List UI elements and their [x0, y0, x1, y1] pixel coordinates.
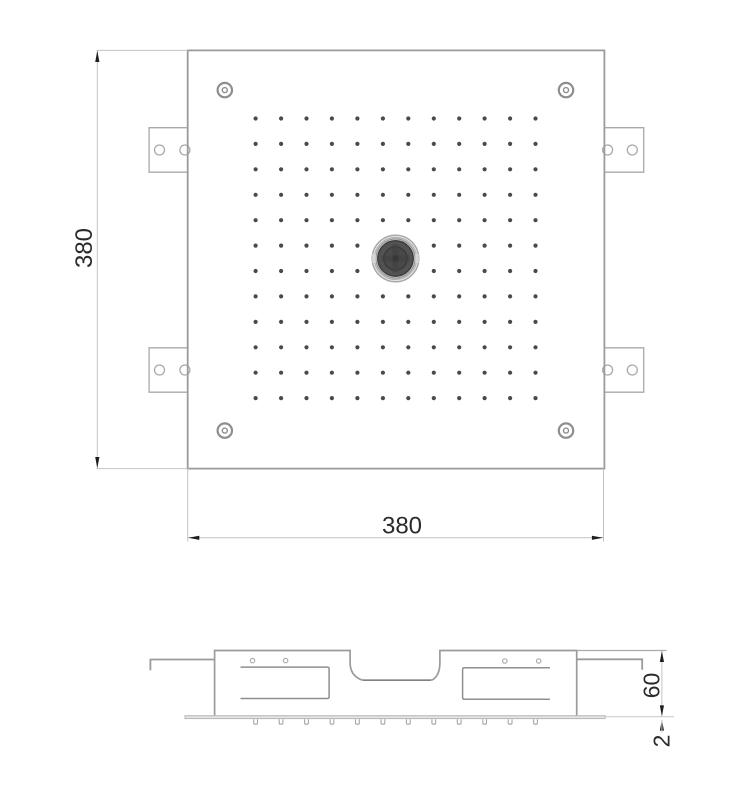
svg-text:60: 60 — [638, 673, 664, 699]
svg-text:380: 380 — [382, 512, 422, 539]
svg-text:380: 380 — [71, 228, 98, 268]
svg-text:2: 2 — [649, 735, 675, 748]
